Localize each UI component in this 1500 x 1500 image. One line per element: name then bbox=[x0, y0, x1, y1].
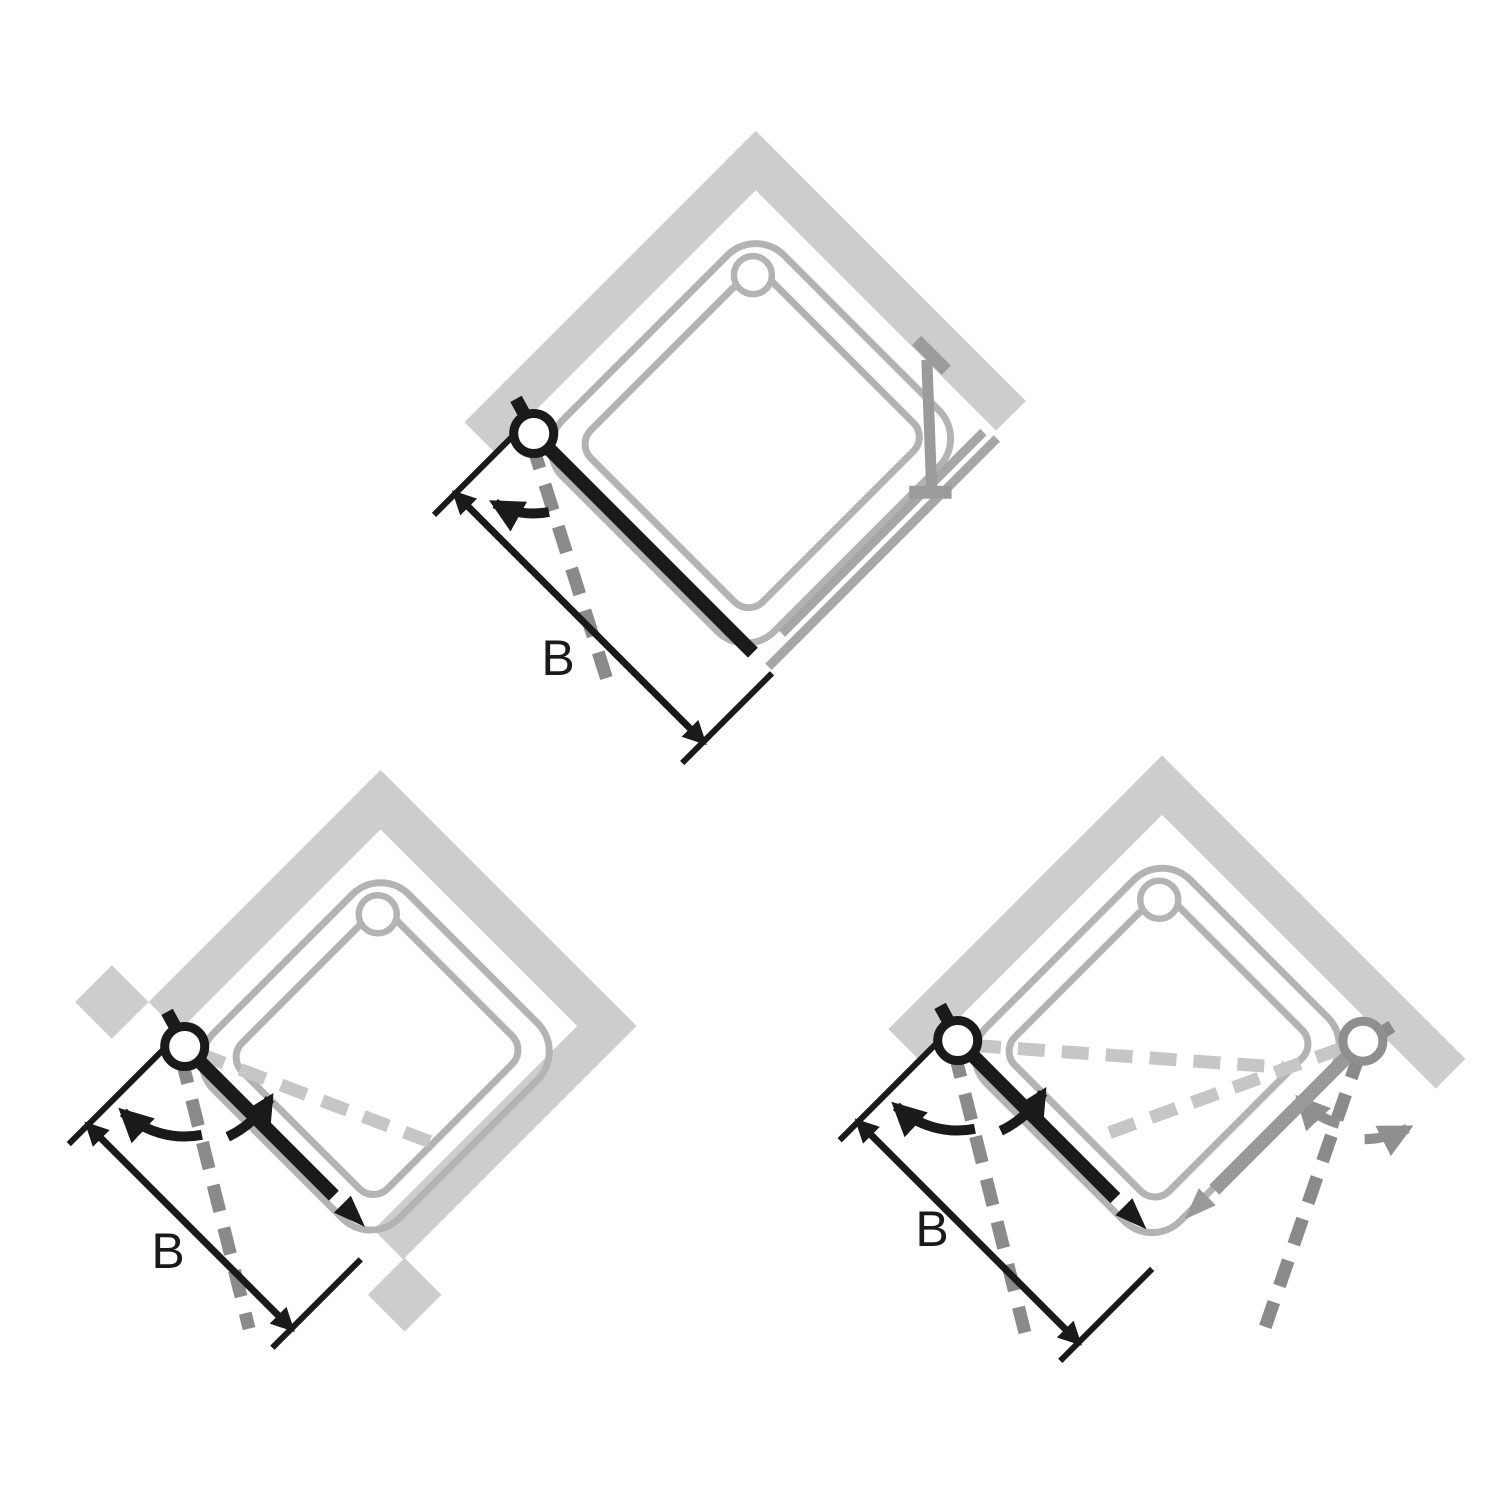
diagram-corner-entry-two-doors bbox=[805, 756, 1499, 1450]
left-door-swing-arrow-outward bbox=[896, 1078, 975, 1157]
drain-icon bbox=[1132, 873, 1186, 927]
width-label: B bbox=[541, 630, 574, 686]
wall-right bbox=[374, 996, 637, 1259]
left-door-open-outward-dashed bbox=[849, 1051, 1130, 1332]
wall-right-return bbox=[368, 1258, 442, 1332]
door-open-outward-dashed bbox=[79, 1057, 351, 1329]
left-pivot-door bbox=[958, 1041, 1116, 1199]
dimension-extension-line bbox=[434, 430, 519, 515]
width-dimension-line bbox=[858, 1122, 1079, 1343]
wall-right bbox=[1132, 756, 1465, 1089]
shower-enclosure-plan-diagrams: B B bbox=[0, 0, 1500, 1500]
wall-left-return bbox=[75, 965, 149, 1039]
drain-icon bbox=[351, 887, 405, 941]
width-label: B bbox=[151, 1223, 184, 1279]
dimension-extension-line bbox=[1060, 1269, 1152, 1361]
width-label: B bbox=[915, 1201, 948, 1257]
door-swing-arrow-outward bbox=[123, 1084, 202, 1163]
right-door-swing-arrow-outward bbox=[1365, 1112, 1408, 1155]
diagram-niche-pivot-door bbox=[0, 733, 673, 1408]
fixed-side-panel-outer bbox=[768, 438, 996, 666]
dimension-extension-line bbox=[272, 1259, 360, 1347]
pivot-door bbox=[185, 1047, 334, 1196]
dimension-extension-line bbox=[682, 673, 772, 763]
drain-icon bbox=[726, 248, 780, 302]
width-dimension-line bbox=[88, 1125, 292, 1329]
diagram-sheet: B B bbox=[0, 0, 1500, 1500]
shower-tray-rim bbox=[1001, 890, 1316, 1205]
diagram-pivot-door-with-side-panel bbox=[403, 131, 1035, 763]
fixed-side-panel-inner bbox=[782, 432, 984, 634]
